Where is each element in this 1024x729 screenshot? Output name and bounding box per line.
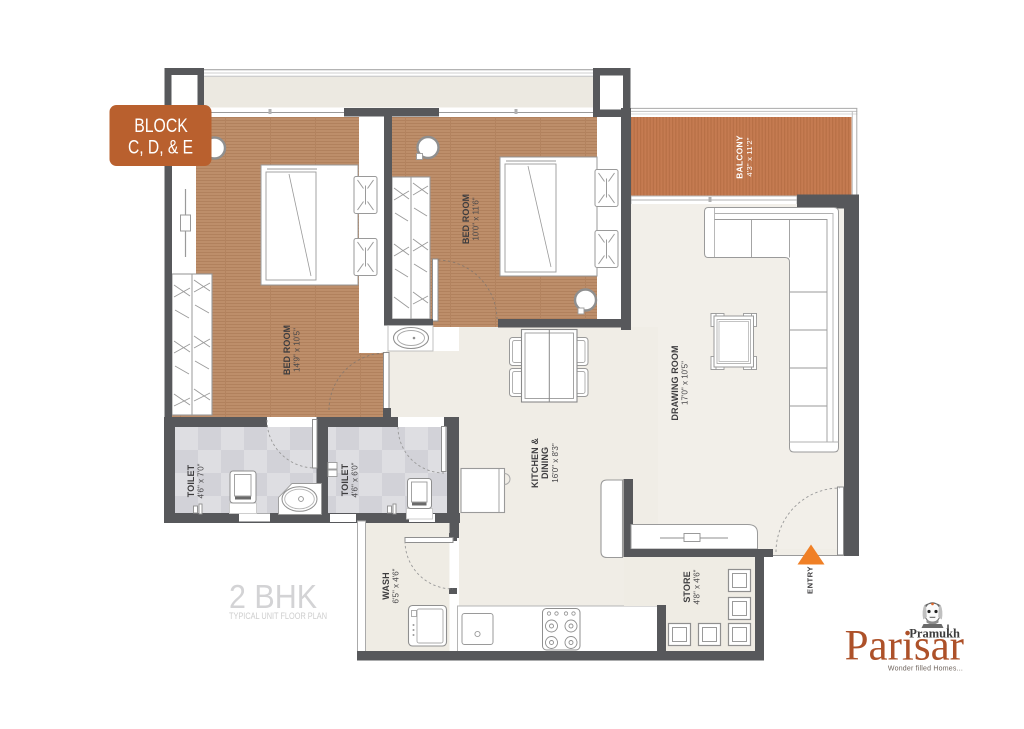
svg-text:4'8" x 4'6": 4'8" x 4'6" xyxy=(693,569,702,604)
svg-text:TYPICAL UNIT FLOOR PLAN: TYPICAL UNIT FLOOR PLAN xyxy=(229,611,327,621)
svg-text:TOILET: TOILET xyxy=(340,463,350,496)
svg-text:4'6" x 7'0": 4'6" x 7'0" xyxy=(197,463,206,498)
svg-text:BALCONY: BALCONY xyxy=(735,135,745,179)
svg-text:DRAWING ROOM: DRAWING ROOM xyxy=(670,345,680,420)
svg-text:C, D, & E: C, D, & E xyxy=(128,137,193,159)
svg-text:10'0" x 11'6": 10'0" x 11'6" xyxy=(472,197,481,240)
svg-text:DINING: DINING xyxy=(540,447,550,479)
svg-text:4'6" x 6'0": 4'6" x 6'0" xyxy=(351,462,360,497)
svg-text:6'5" x 4'6": 6'5" x 4'6" xyxy=(392,568,401,603)
svg-text:17'0" x 10'5": 17'0" x 10'5" xyxy=(681,361,690,405)
svg-text:Parisar: Parisar xyxy=(845,623,964,670)
svg-text:KITCHEN &: KITCHEN & xyxy=(530,438,540,488)
svg-text:ENTRY: ENTRY xyxy=(806,566,815,594)
svg-text:4'3" x 11'2": 4'3" x 11'2" xyxy=(745,137,754,176)
svg-text:16'0" x 8'3": 16'0" x 8'3" xyxy=(551,443,560,483)
svg-text:BLOCK: BLOCK xyxy=(134,115,188,137)
svg-text:WASH: WASH xyxy=(381,572,391,599)
svg-text:STORE: STORE xyxy=(682,571,692,602)
svg-text:Wonder filled Homes...: Wonder filled Homes... xyxy=(888,666,963,673)
svg-text:TOILET: TOILET xyxy=(186,464,196,497)
svg-text:2 BHK: 2 BHK xyxy=(229,578,317,615)
svg-text:BED ROOM: BED ROOM xyxy=(461,194,471,244)
svg-text:14'9" x 10'5": 14'9" x 10'5" xyxy=(293,328,302,372)
svg-text:BED ROOM: BED ROOM xyxy=(282,325,292,375)
